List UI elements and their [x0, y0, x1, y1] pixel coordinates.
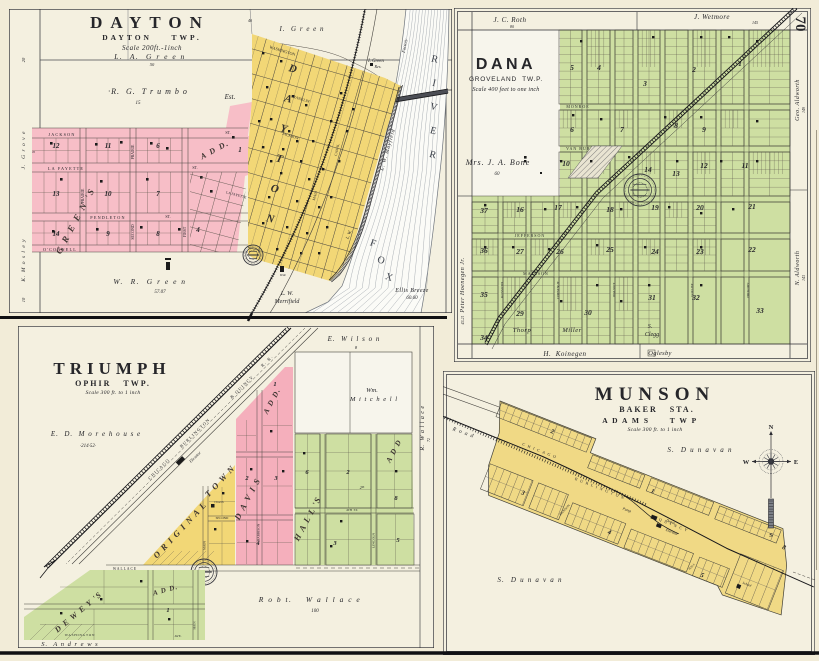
svg-text:Scale 300 ft. to 1 inch: Scale 300 ft. to 1 inch: [628, 426, 683, 433]
svg-text:HARRISON: HARRISON: [257, 523, 261, 541]
svg-text:145: 145: [752, 20, 758, 25]
svg-text:29: 29: [515, 309, 524, 318]
svg-text:S. D u n a v a n: S. D u n a v a n: [667, 446, 732, 454]
svg-text:WALNUT: WALNUT: [612, 282, 616, 297]
svg-text:21: 21: [747, 202, 756, 211]
svg-text:LINCOLN: LINCOLN: [372, 533, 376, 548]
svg-text:PENDLETON: PENDLETON: [90, 215, 125, 220]
svg-text:8: 8: [156, 230, 160, 238]
svg-text:43.21: 43.21: [460, 316, 465, 325]
svg-text:A D A M S T W P: A D A M S T W P: [602, 416, 697, 425]
svg-text:Geo. Aldworth: Geo. Aldworth: [795, 79, 801, 121]
svg-text:13: 13: [53, 190, 61, 198]
svg-text:LA FAYETTE: LA FAYETTE: [48, 166, 84, 171]
svg-text:Thorp: Thorp: [513, 327, 532, 334]
svg-text:L. A. G r e e n: L. A. G r e e n: [113, 52, 186, 61]
svg-text:10: 10: [105, 190, 113, 198]
svg-text:57.07: 57.07: [154, 290, 166, 295]
svg-text:25: 25: [605, 245, 614, 254]
svg-text:MAIN: MAIN: [203, 540, 207, 550]
svg-text:Est.: Est.: [224, 93, 236, 101]
svg-text:27: 27: [515, 247, 524, 256]
svg-text:Church: Church: [214, 500, 224, 504]
svg-text:SECOND: SECOND: [216, 516, 229, 520]
svg-text:SECOND: SECOND: [131, 224, 135, 239]
svg-text:31: 31: [647, 293, 656, 302]
svg-text:26: 26: [555, 247, 564, 256]
svg-text:50: 50: [150, 62, 155, 67]
svg-text:15: 15: [136, 101, 142, 106]
svg-text:5: 5: [570, 63, 574, 72]
svg-text:ST.: ST.: [225, 130, 230, 135]
svg-text:GROVELAND TW.P.: GROVELAND TW.P.: [469, 76, 543, 83]
svg-text:24: 24: [650, 247, 659, 256]
svg-text:JACKSON: JACKSON: [48, 132, 75, 137]
svg-text:I. G r e e n: I. G r e e n: [278, 25, 324, 33]
svg-text:S.: S.: [648, 324, 653, 330]
svg-text:100: 100: [311, 609, 319, 614]
svg-text:CHESTNUT: CHESTNUT: [556, 280, 560, 299]
svg-text:4T​H ST.: 4T​H ST.: [346, 508, 358, 512]
svg-text:S. D u n a v a n: S. D u n a v a n: [497, 576, 562, 584]
svg-text:W: W: [743, 459, 750, 466]
svg-text:BAKER STA.: BAKER STA.: [619, 405, 694, 414]
svg-text:Res.: Res.: [373, 64, 381, 69]
svg-text:KOSSUTH: KOSSUTH: [500, 282, 504, 298]
svg-text:LOCUST: LOCUST: [690, 282, 694, 296]
svg-text:12: 12: [700, 161, 708, 170]
svg-text:E. D. M o r e h o u s e: E. D. M o r e h o u s e: [50, 430, 141, 438]
svg-text:Clegg: Clegg: [645, 332, 659, 338]
svg-text:4: 4: [195, 226, 200, 234]
svg-text:DAYTON: DAYTON: [90, 13, 210, 32]
svg-text:17: 17: [554, 203, 562, 212]
svg-text:Scale 400 feet to one inch: Scale 400 feet to one inch: [472, 86, 539, 93]
svg-text:AVE.: AVE.: [175, 634, 182, 638]
svg-text:33: 33: [755, 306, 764, 315]
svg-text:Peter Hoenegen Jr.: Peter Hoenegen Jr.: [460, 257, 466, 313]
svg-text:Scale 300 ft. to 1 inch: Scale 300 ft. to 1 inch: [86, 389, 141, 396]
svg-text:R o b t. W a l l a c e: R o b t. W a l l a c e: [258, 595, 362, 604]
svg-text:Scale 200ft.-1inch: Scale 200ft.-1inch: [122, 44, 182, 52]
svg-text:4: 4: [596, 63, 601, 72]
svg-text:·R. G. T r u m b o: ·R. G. T r u m b o: [108, 87, 188, 96]
svg-text:10: 10: [562, 159, 570, 168]
svg-text:9: 9: [106, 230, 110, 238]
svg-text:60.60: 60.60: [406, 296, 418, 301]
svg-text:JEFFERSON: JEFFERSON: [515, 233, 546, 238]
svg-text:MUNSON: MUNSON: [595, 384, 715, 405]
svg-text:30: 30: [583, 308, 592, 317]
svg-text:37: 37: [479, 206, 488, 215]
svg-text:S. A n d r e w s: S. A n d r e w s: [41, 641, 98, 648]
svg-text:J. C. Roth: J. C. Roth: [494, 16, 527, 24]
svg-text:PRAIRIE: PRAIRIE: [131, 144, 135, 159]
svg-text:16: 16: [516, 205, 524, 214]
svg-text:J. Wetmore: J. Wetmore: [694, 13, 730, 21]
svg-text:20: 20: [695, 203, 704, 212]
svg-text:18: 18: [606, 205, 614, 214]
svg-text:MONROE: MONROE: [566, 104, 589, 109]
svg-text:7: 7: [156, 190, 160, 198]
svg-text:DAYTON TWP.: DAYTON TWP.: [102, 33, 201, 42]
svg-text:36: 36: [479, 246, 488, 255]
svg-text:J. G r o v e: J. G r o v e: [21, 131, 27, 170]
svg-text:80: 80: [510, 24, 514, 29]
svg-text:70: 70: [792, 17, 808, 32]
svg-text:Ellis Breeze: Ellis Breeze: [394, 288, 428, 294]
svg-text:40: 40: [248, 18, 252, 23]
svg-text:HICKORY: HICKORY: [746, 282, 750, 298]
svg-text:1: 1: [166, 607, 169, 614]
svg-text:·214·52·: ·214·52·: [80, 444, 96, 449]
svg-text:S: S: [769, 532, 773, 539]
svg-text:Miller: Miller: [561, 327, 581, 334]
svg-text:M i t c h e l l: M i t c h e l l: [349, 396, 398, 403]
svg-text:35: 35: [479, 290, 488, 299]
svg-text:FIRST: FIRST: [183, 226, 187, 237]
svg-text:MAIN: MAIN: [193, 621, 197, 630]
svg-text:E. W i l s o n: E. W i l s o n: [327, 335, 381, 343]
svg-text:K. M o s l e y: K. M o s l e y: [21, 238, 27, 282]
svg-text:WASHINGTON: WASHINGTON: [65, 633, 96, 637]
svg-text:H. Koinegen: H. Koinegen: [542, 350, 586, 358]
svg-text:11: 11: [741, 161, 748, 170]
svg-text:ST.: ST.: [192, 165, 197, 170]
svg-text:20: 20: [21, 57, 26, 62]
svg-text:10: 10: [21, 297, 26, 302]
svg-text:22: 22: [747, 245, 756, 254]
svg-text:DANA: DANA: [476, 56, 536, 73]
svg-text:OPHIR TWP.: OPHIR TWP.: [75, 379, 151, 388]
svg-text:N: N: [769, 424, 774, 431]
svg-text:W. R. G r e e n: W. R. G r e e n: [113, 277, 186, 286]
svg-text:1: 1: [238, 146, 242, 154]
svg-text:ST.: ST.: [165, 214, 170, 219]
svg-text:7: 7: [620, 125, 624, 134]
svg-text:W​m.: W​m.: [366, 387, 378, 394]
svg-text:R. W a l l a c e: R. W a l l a c e: [420, 405, 426, 451]
svg-text:Merrifield: Merrifield: [274, 298, 301, 305]
svg-text:3: 3: [642, 79, 647, 88]
svg-text:149: 149: [801, 107, 806, 113]
svg-text:143: 143: [801, 275, 806, 281]
svg-text:6: 6: [570, 125, 574, 134]
svg-text:23: 23: [695, 247, 704, 256]
svg-text:W.R.: W.R.: [280, 273, 287, 277]
svg-text:19: 19: [651, 203, 659, 212]
svg-text:13: 13: [672, 169, 680, 178]
svg-text:12: 12: [53, 142, 61, 150]
svg-text:9: 9: [702, 125, 706, 134]
svg-text:TRIUMPH: TRIUMPH: [53, 359, 170, 378]
svg-text:L. W.: L. W.: [280, 291, 293, 297]
svg-text:Mrs. J. A. Bone: Mrs. J. A. Bone: [465, 158, 531, 167]
svg-text:E: E: [794, 459, 798, 466]
svg-text:14: 14: [644, 165, 652, 174]
svg-text:60: 60: [495, 172, 501, 177]
svg-text:2: 2: [691, 65, 696, 74]
svg-text:S: S: [31, 151, 36, 153]
svg-text:2²⁵: 2²⁵: [360, 485, 365, 490]
svg-text:72: 72: [426, 438, 431, 442]
svg-text:11: 11: [105, 142, 112, 150]
svg-text:6: 6: [156, 142, 160, 150]
